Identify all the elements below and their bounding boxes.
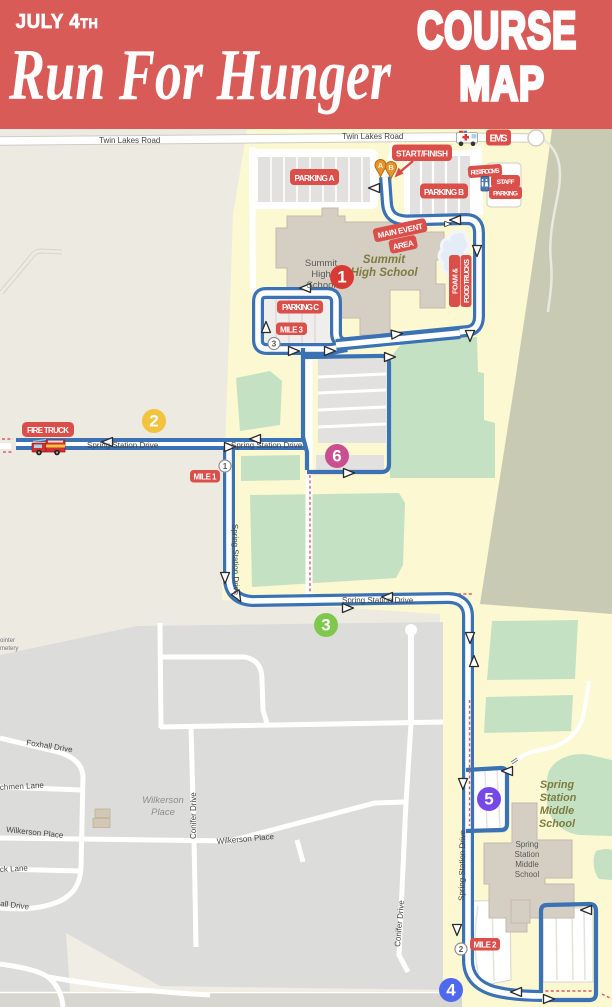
svg-text:Spring Station Drive: Spring Station Drive <box>87 441 159 450</box>
svg-text:Spring Station Drive: Spring Station Drive <box>342 596 414 605</box>
svg-text:Middle: Middle <box>540 805 574 817</box>
svg-text:Middle: Middle <box>515 860 539 869</box>
svg-text:MILE 1: MILE 1 <box>194 473 218 482</box>
svg-text:MAP: MAP <box>459 58 545 112</box>
svg-text:Twin Lakes Road: Twin Lakes Road <box>342 132 403 141</box>
svg-text:START/FINISH: START/FINISH <box>396 149 448 159</box>
svg-text:High School: High School <box>350 267 418 279</box>
svg-text:High: High <box>311 269 331 280</box>
svg-text:6: 6 <box>332 447 341 466</box>
svg-text:School: School <box>539 818 576 830</box>
svg-text:MILE 3: MILE 3 <box>280 325 304 334</box>
svg-text:2: 2 <box>459 945 464 954</box>
svg-text:Spring: Spring <box>515 840 538 849</box>
svg-text:Conifer Drive: Conifer Drive <box>189 792 198 839</box>
svg-text:1: 1 <box>223 462 228 471</box>
svg-text:PARKING C: PARKING C <box>282 303 319 312</box>
svg-text:Place: Place <box>151 807 175 818</box>
svg-text:FOOD TRUCKS: FOOD TRUCKS <box>462 259 471 303</box>
svg-text:PARKING A: PARKING A <box>295 174 335 183</box>
svg-text:Wilkerson: Wilkerson <box>142 795 184 806</box>
svg-text:3: 3 <box>272 340 277 349</box>
svg-text:A: A <box>378 161 384 170</box>
svg-text:metery: metery <box>0 646 18 652</box>
svg-text:MILE 2: MILE 2 <box>474 941 498 950</box>
svg-text:Spring Station Drive: Spring Station Drive <box>457 829 467 901</box>
svg-text:PARKING: PARKING <box>493 191 518 198</box>
svg-text:Spring Station Drive: Spring Station Drive <box>231 524 241 596</box>
svg-text:FIRE TRUCK: FIRE TRUCK <box>27 426 69 435</box>
svg-text:3: 3 <box>321 616 330 635</box>
svg-text:FOAM &: FOAM & <box>450 268 459 294</box>
svg-text:Station: Station <box>515 850 540 859</box>
svg-text:B: B <box>388 163 393 172</box>
svg-text:Spring Station Drive: Spring Station Drive <box>231 441 303 450</box>
svg-text:Spring: Spring <box>540 779 575 791</box>
svg-text:Station: Station <box>540 792 577 804</box>
svg-text:1: 1 <box>337 268 346 287</box>
svg-text:School: School <box>515 870 540 879</box>
svg-text:2: 2 <box>149 412 158 431</box>
svg-text:Run For Hunger: Run For Hunger <box>8 34 391 115</box>
svg-text:STAFF: STAFF <box>497 179 515 186</box>
svg-text:ointer: ointer <box>0 638 15 644</box>
svg-text:5: 5 <box>484 790 493 809</box>
svg-text:Summit: Summit <box>363 254 406 266</box>
svg-text:PARKING B: PARKING B <box>424 188 464 197</box>
svg-text:COURSE: COURSE <box>417 0 577 59</box>
svg-text:EMS: EMS <box>490 134 508 145</box>
svg-text:ck Lane: ck Lane <box>0 864 29 874</box>
svg-text:Twin Lakes Road: Twin Lakes Road <box>99 136 160 145</box>
svg-text:Summit: Summit <box>305 258 338 269</box>
svg-text:4: 4 <box>446 981 456 1000</box>
